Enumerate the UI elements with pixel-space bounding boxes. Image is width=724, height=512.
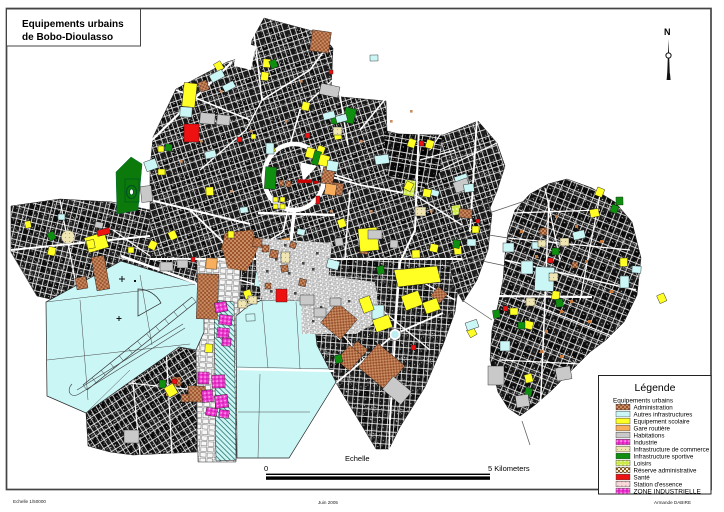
- svg-text:ZONE INDUSTRIELLE: ZONE INDUSTRIELLE: [634, 488, 702, 495]
- svg-text:N: N: [664, 27, 671, 37]
- svg-text:Habitations: Habitations: [634, 432, 665, 439]
- svg-text:de Bobo-Dioulasso: de Bobo-Dioulasso: [22, 32, 113, 43]
- svg-text:0: 0: [264, 464, 268, 473]
- svg-text:Autres infrastructures: Autres infrastructures: [634, 411, 693, 418]
- svg-text:Equipement scolaire: Equipement scolaire: [634, 418, 691, 425]
- svg-text:Gare routière: Gare routière: [634, 425, 671, 432]
- svg-text:Infrastructure sportive: Infrastructure sportive: [634, 453, 694, 460]
- svg-text:Juin 2005: Juin 2005: [318, 500, 338, 505]
- svg-text:Station d'essence: Station d'essence: [634, 481, 683, 488]
- svg-text:Armande DABIRE: Armande DABIRE: [654, 500, 691, 505]
- svg-text:Industrie: Industrie: [634, 439, 658, 446]
- svg-text:Echelle: Echelle: [345, 454, 370, 463]
- svg-text:Equipements urbains: Equipements urbains: [22, 19, 124, 30]
- svg-text:Infrastructure de commerce: Infrastructure de commerce: [634, 446, 710, 453]
- svg-text:Santé: Santé: [634, 474, 651, 481]
- svg-text:Réserve administrative: Réserve administrative: [634, 467, 697, 474]
- svg-text:5 Kilometers: 5 Kilometers: [488, 464, 530, 473]
- svg-text:Légende: Légende: [635, 382, 676, 394]
- svg-text:Loisirs: Loisirs: [634, 460, 652, 467]
- svg-text:Echelle 1/50000: Echelle 1/50000: [13, 499, 46, 504]
- svg-text:Administration: Administration: [634, 404, 674, 411]
